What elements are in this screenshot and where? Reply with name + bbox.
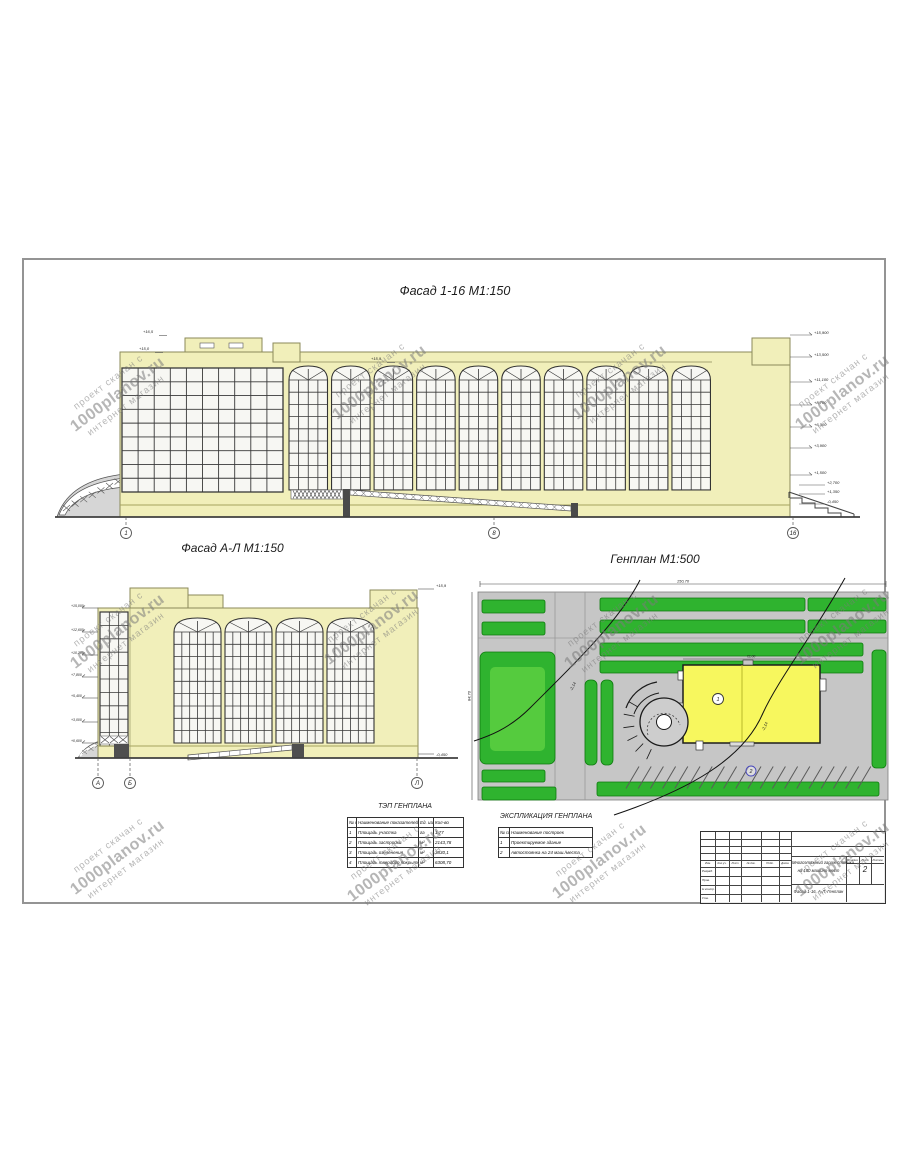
title-block-text: Утв.: [702, 896, 709, 900]
facade-1-16-title: Фасад 1-16 М1:150: [330, 284, 580, 298]
title-block-text: Изм.: [701, 861, 715, 865]
table-cell: м²: [419, 858, 434, 868]
table-cell: 4: [348, 858, 357, 868]
table-header-cell: Наименование показателей: [357, 818, 419, 828]
table-row: 3Площадь озеленениям²3830,1: [348, 848, 464, 858]
svg-text:+13,500: +13,500: [814, 352, 829, 357]
table-header-row: № п/пНаименование показателейЕд. изм.Кол…: [348, 818, 464, 828]
svg-text:+15,9: +15,9: [436, 583, 447, 588]
table-cell: Проектируемое здание: [510, 838, 593, 848]
title-block-line: [701, 846, 791, 847]
table-cell: 2: [499, 848, 510, 858]
table-row: 2Площадь застройким²2143,78: [348, 838, 464, 848]
title-block-line: [791, 846, 884, 847]
title-block-text: Пров.: [702, 878, 710, 882]
sheet-number: 2: [859, 865, 871, 874]
svg-text:+3,000: +3,000: [71, 718, 82, 722]
svg-text:Б: Б: [128, 781, 132, 787]
title-block-line: [701, 894, 791, 895]
title-block-text: № док.: [741, 861, 761, 865]
table-row: 1Площадь участкага1,77: [348, 828, 464, 838]
svg-text:+10,200: +10,200: [71, 651, 84, 655]
svg-text:А: А: [95, 781, 100, 787]
table-cell: 2143,78: [434, 838, 464, 848]
svg-text:150,70: 150,70: [677, 579, 690, 584]
table-cell: Автостоянка на 24 маш./места: [510, 848, 593, 858]
table-cell: га: [419, 828, 434, 838]
title-block-text: Разраб.: [702, 869, 713, 873]
table-header-cell: Кол-во: [434, 818, 464, 828]
svg-text:+3,900: +3,900: [814, 443, 827, 448]
table-cell: 1,77: [434, 828, 464, 838]
svg-text:+8,700: +8,700: [814, 400, 827, 405]
facade-1-16-drawing: +15,900+13,500+11,100+8,700+6,300+3,900+…: [55, 322, 860, 550]
title-block-text: Н.контр.: [702, 887, 715, 891]
svg-text:16: 16: [790, 531, 797, 537]
title-block-text: Дата: [779, 861, 791, 865]
table-cell: Площадь участка: [357, 828, 419, 838]
svg-text:+11,100: +11,100: [814, 377, 829, 382]
svg-text:+12,600: +12,600: [71, 628, 84, 632]
drawing-scan-page: Фасад 1-16 М1:150 Фасад А-Л М1:150 Генпл…: [0, 0, 910, 1155]
title-block-line: [701, 876, 791, 877]
svg-text:1: 1: [716, 697, 719, 703]
table-cell: Площадь твердого покрытия: [357, 858, 419, 868]
title-block-line: [701, 839, 791, 840]
tep-table: № п/пНаименование показателейЕд. изм.Кол…: [347, 817, 463, 868]
svg-text:+15,000: +15,000: [71, 604, 84, 608]
table-cell: Площадь застройки: [357, 838, 419, 848]
table-cell: 3830,1: [434, 848, 464, 858]
table-header-cell: № п/п: [348, 818, 357, 828]
svg-text:+1,350: +1,350: [827, 489, 840, 494]
title-block-text: Листов: [871, 858, 884, 862]
svg-text:72,00: 72,00: [747, 655, 756, 659]
title-block-text: Многоэтажный гараж-стоянка: [792, 860, 845, 865]
table-header-cell: Наименование построек: [510, 828, 593, 838]
svg-text:+2,700: +2,700: [827, 480, 840, 485]
svg-text:2: 2: [749, 769, 753, 775]
svg-text:Л: Л: [414, 781, 420, 787]
svg-text:-0,450: -0,450: [436, 752, 448, 757]
svg-text:+15,0: +15,0: [139, 346, 150, 351]
genplan-drawing: 150,7084,7072,00-2,14-2,1412: [468, 575, 890, 820]
table-cell: 3: [348, 848, 357, 858]
table-cell: м²: [419, 848, 434, 858]
svg-text:+6,300: +6,300: [814, 422, 827, 427]
table-cell: м²: [419, 838, 434, 848]
table-header-cell: Ед. изм.: [419, 818, 434, 828]
title-block-line: [791, 884, 884, 885]
table-cell: 1: [499, 838, 510, 848]
title-block-text: Лист: [859, 858, 871, 862]
title-block: Изм.Кол.уч.Лист№ док.Подп.ДатаРазраб.Про…: [700, 831, 886, 904]
svg-text:-0,450: -0,450: [827, 499, 839, 504]
title-block-text: Кол.уч.: [715, 861, 729, 865]
svg-text:+16,5: +16,5: [143, 329, 154, 334]
table-cell: 2: [348, 838, 357, 848]
table-row: 1Проектируемое здание: [499, 838, 593, 848]
svg-text:+15,900: +15,900: [814, 330, 829, 335]
svg-text:+5,400: +5,400: [71, 694, 82, 698]
genplan-title: Генплан М1:500: [545, 552, 765, 566]
title-block-text: Фасад 1-16, А-Л, Генплан: [792, 889, 845, 894]
facade-a-l-drawing: +15,000+12,600+10,200+7,800+5,400+3,000+…: [70, 568, 465, 803]
svg-text:1: 1: [124, 531, 127, 537]
explication-table: № п/пНаименование построек1Проектируемое…: [498, 827, 592, 858]
table-cell: 1: [348, 828, 357, 838]
table-header-row: № п/пНаименование построек: [499, 828, 593, 838]
title-block-text: на 180 машино-мест: [792, 868, 845, 873]
svg-text:84,70: 84,70: [467, 690, 472, 701]
title-block-text: Лист: [729, 861, 741, 865]
table-header-cell: № п/п: [499, 828, 510, 838]
table-row: 4Площадь твердого покрытиям²6308,70: [348, 858, 464, 868]
tep-table-title: ТЭП ГЕНПЛАНА: [345, 803, 465, 810]
table-cell: Площадь озеленения: [357, 848, 419, 858]
title-block-text: Подп.: [761, 861, 779, 865]
svg-text:+7,800: +7,800: [71, 673, 82, 677]
title-block-line: [701, 853, 791, 854]
svg-text:+15,9: +15,9: [371, 356, 382, 361]
table-cell: 6308,70: [434, 858, 464, 868]
title-block-line: [701, 867, 791, 868]
table-row: 2Автостоянка на 24 маш./места: [499, 848, 593, 858]
svg-text:+1,500: +1,500: [814, 470, 827, 475]
svg-text:+0,600: +0,600: [71, 739, 82, 743]
